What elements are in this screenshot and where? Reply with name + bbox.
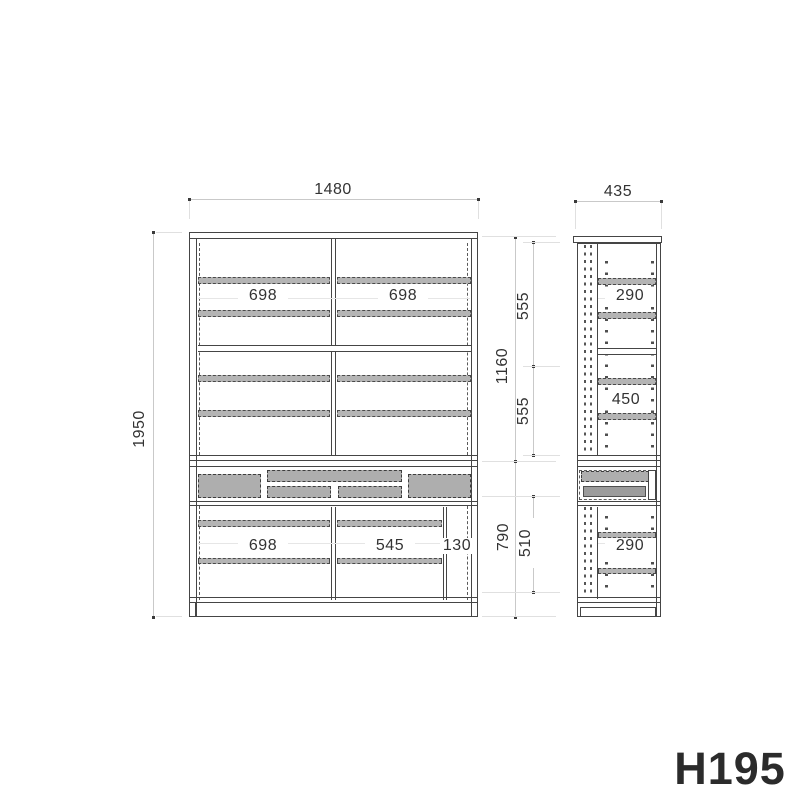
dim-tick <box>660 200 663 203</box>
shelf <box>337 375 471 382</box>
drawing-title: H195 <box>668 745 792 793</box>
floor-line <box>578 597 660 598</box>
back-panel-line <box>597 507 598 599</box>
ext-line <box>482 496 560 497</box>
ext-line <box>523 455 560 456</box>
shelf <box>198 410 331 417</box>
shelf <box>598 378 656 385</box>
drawer-side-body <box>583 486 646 498</box>
fixed-shelf <box>598 348 656 355</box>
pin-holes <box>651 516 654 592</box>
side-depth-label-bottom: 290 <box>605 538 655 554</box>
drawer-rail-line <box>190 505 477 506</box>
dim-label-upper-height: 1160 <box>495 336 511 396</box>
ext-line <box>156 616 182 617</box>
lower-width-label-left: 698 <box>238 538 288 554</box>
dim-line-height <box>153 232 154 617</box>
dim-label-upper-inner-2: 555 <box>516 386 532 436</box>
shelf <box>598 278 656 285</box>
side-front-panel-line <box>656 244 657 616</box>
ext-line <box>575 203 576 229</box>
dim-label-lower-inner: 510 <box>518 518 534 568</box>
dim-tick <box>152 231 155 234</box>
drawer-mid-bottom-right <box>338 486 403 498</box>
base-left-line <box>195 603 196 617</box>
kick-board <box>580 607 656 617</box>
dim-label-width: 1480 <box>303 182 363 198</box>
dim-tick <box>574 200 577 203</box>
dim-label-height: 1950 <box>132 399 148 459</box>
shelf <box>198 277 331 284</box>
dim-tick <box>188 198 191 201</box>
shelf <box>198 375 331 382</box>
shelf <box>598 568 656 575</box>
drawer-front-edge <box>648 470 656 500</box>
back-panel-holes <box>584 245 587 453</box>
fixed-shelf <box>198 345 471 352</box>
drawer-rail-line <box>190 501 477 502</box>
upper-width-label-left: 698 <box>238 288 288 304</box>
dim-label-depth: 435 <box>588 184 648 200</box>
upper-width-label-right: 698 <box>378 288 428 304</box>
floor-line <box>190 602 477 603</box>
lower-center-divider <box>331 507 332 600</box>
front-topboard-line <box>190 238 477 239</box>
back-panel-holes <box>590 507 593 598</box>
shelf <box>337 558 443 565</box>
floor-line <box>190 597 477 598</box>
pin-holes <box>605 516 608 592</box>
dim-label-upper-inner-1: 555 <box>516 281 532 331</box>
lower-width-label-narrow: 130 <box>440 538 474 554</box>
ext-line <box>189 201 190 219</box>
ext-line <box>482 461 556 462</box>
lower-width-label-mid: 545 <box>365 538 415 554</box>
back-panel-holes <box>590 245 593 453</box>
lower-top-line <box>578 466 660 467</box>
dim-tick <box>152 616 155 619</box>
ext-line <box>523 242 560 243</box>
drawer-right <box>408 474 472 498</box>
dim-line-upper-inner <box>533 242 534 455</box>
drawer-rail-line <box>578 505 660 506</box>
ext-line <box>523 366 560 367</box>
hutch-bottom-line <box>190 455 477 456</box>
drawer-left <box>198 474 261 498</box>
back-panel-holes <box>584 507 587 598</box>
shelf <box>337 520 443 527</box>
ext-line <box>478 201 479 219</box>
lower-top-line <box>190 466 477 467</box>
front-right-panel-line <box>471 238 472 617</box>
furniture-dimension-drawing: 698 698 698 545 130 <box>0 0 800 800</box>
shelf <box>198 310 331 317</box>
ext-line <box>482 592 560 593</box>
shelf <box>337 277 471 284</box>
ext-line <box>156 232 182 233</box>
ext-line <box>482 236 556 237</box>
ext-line <box>661 203 662 229</box>
dim-line-depth <box>575 201 661 202</box>
drawer-mid-top <box>267 470 402 482</box>
drawer-rail-line <box>578 501 660 502</box>
dim-tick <box>477 198 480 201</box>
drawer-side-top <box>581 471 649 482</box>
base-right-line <box>471 603 472 617</box>
hutch-bottom-line <box>190 460 477 461</box>
dim-label-lower-height: 790 <box>496 512 512 562</box>
shelf <box>337 310 471 317</box>
shelf <box>598 413 656 420</box>
shelf <box>198 558 331 565</box>
ext-line <box>482 616 556 617</box>
hutch-bottom-line <box>578 455 660 456</box>
shelf <box>598 312 656 319</box>
drawer-mid-bottom-left <box>267 486 331 498</box>
floor-line <box>578 602 660 603</box>
dim-line-width <box>189 199 478 200</box>
shelf <box>198 520 331 527</box>
hutch-bottom-line <box>578 460 660 461</box>
side-depth-label-top: 290 <box>605 288 655 304</box>
shelf <box>337 410 471 417</box>
side-depth-label-mid: 450 <box>601 392 651 408</box>
